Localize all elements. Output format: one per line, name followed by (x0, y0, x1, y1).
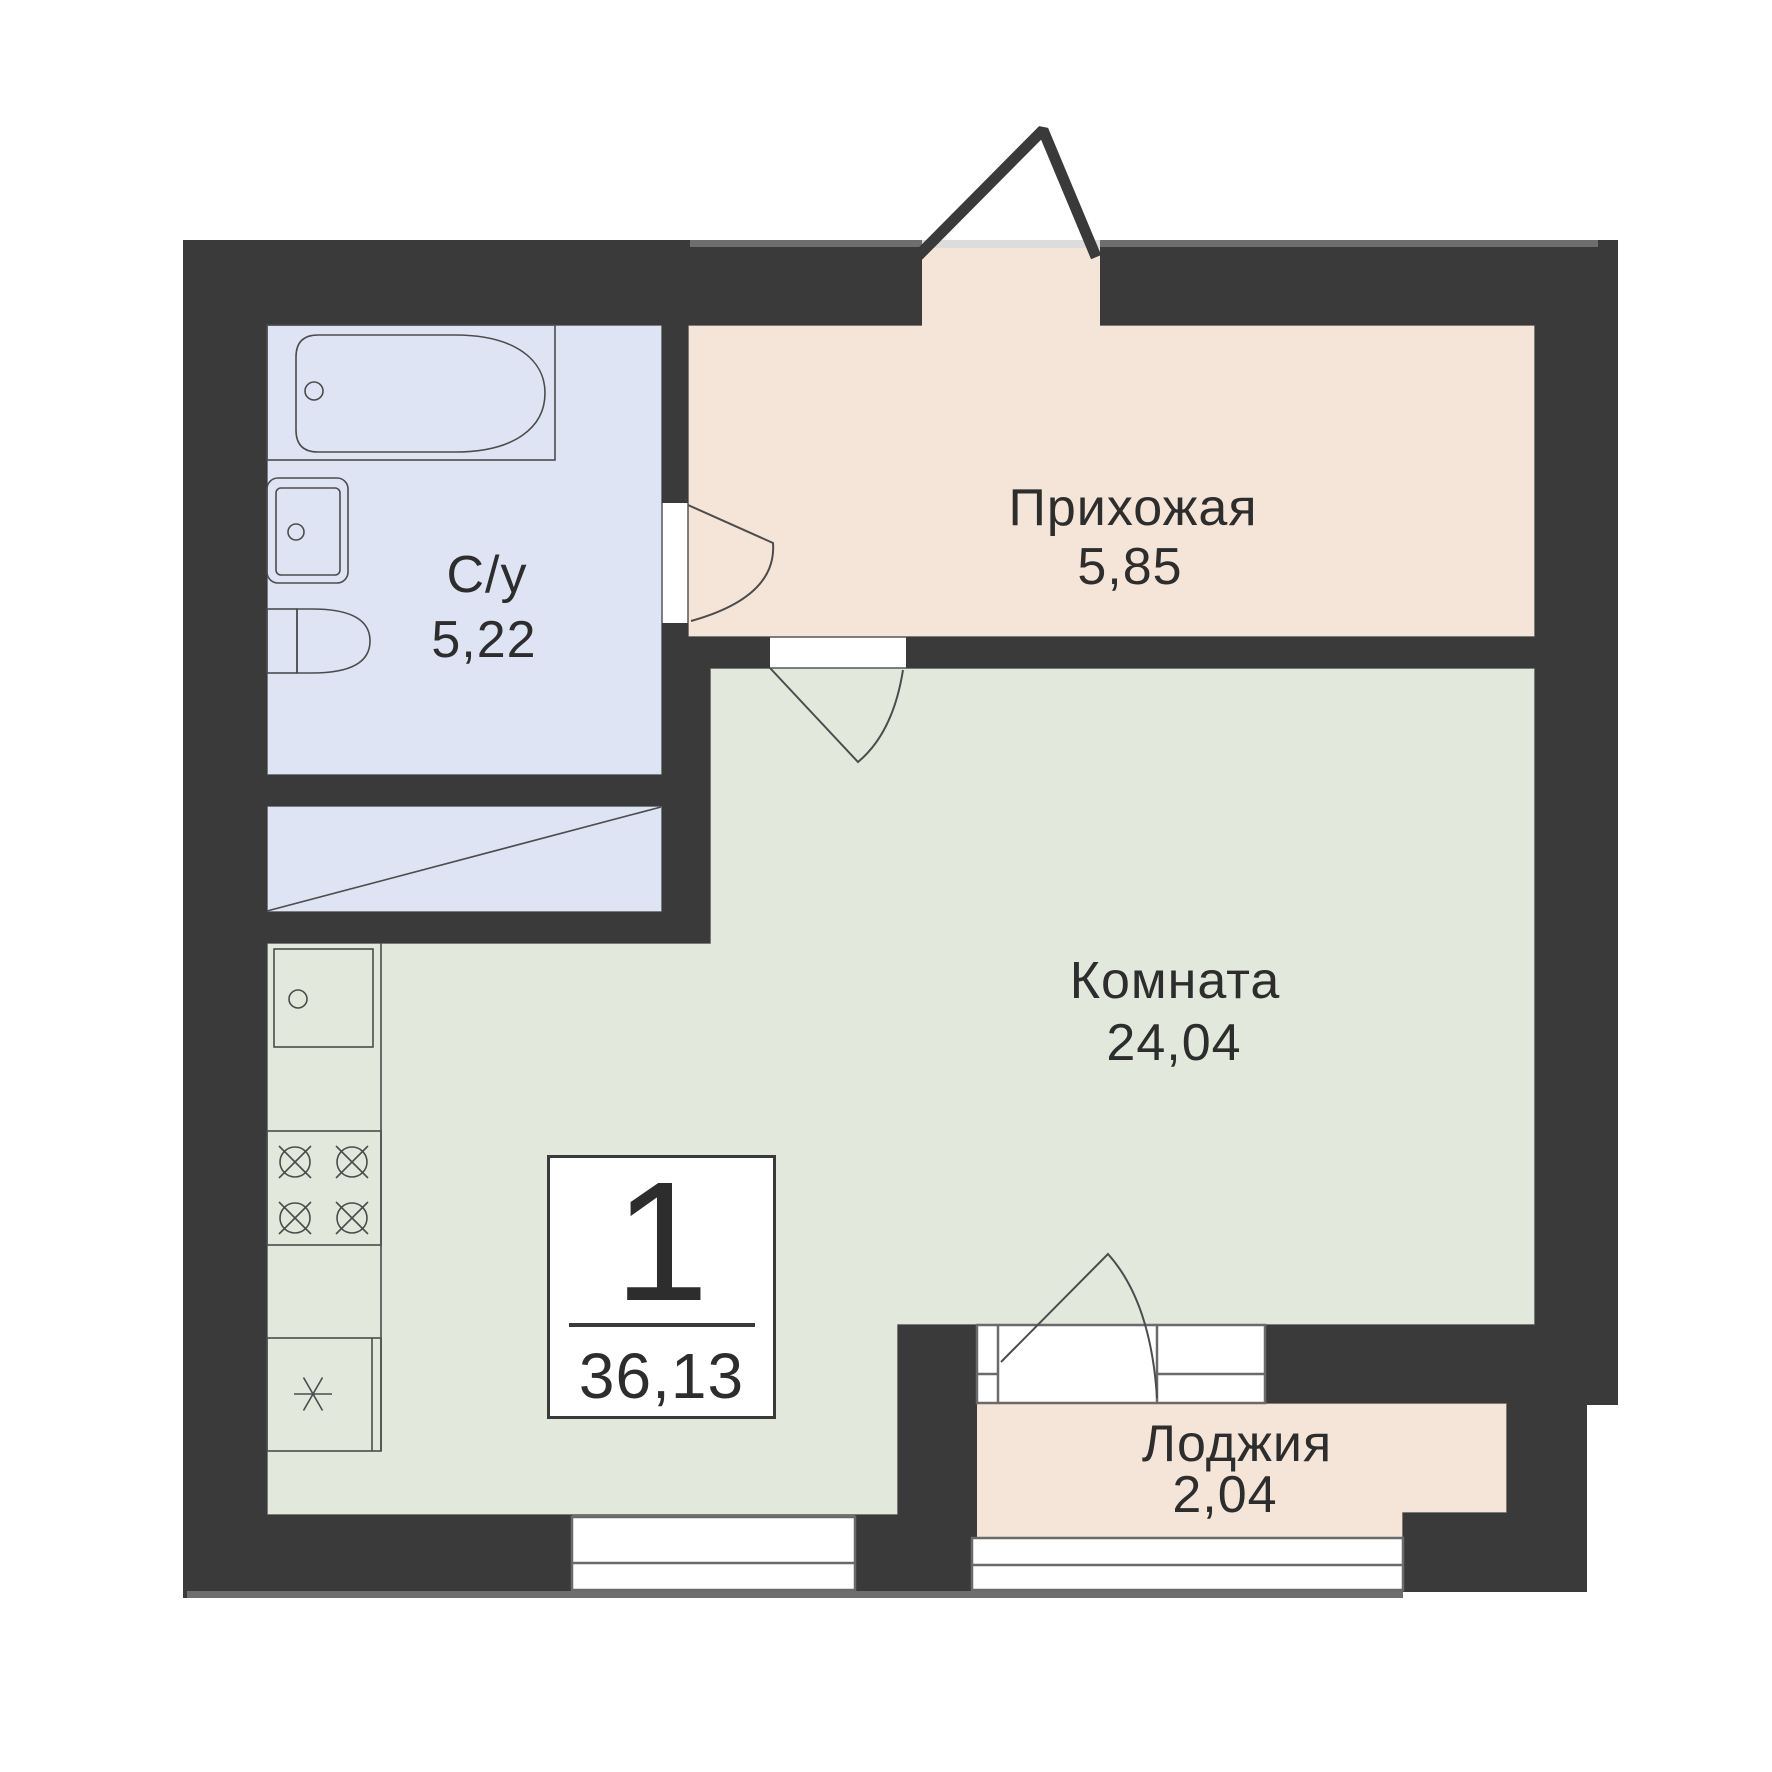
wall-bottom-left (183, 1515, 572, 1598)
hallway-area: 5,85 (1077, 537, 1182, 597)
wall-loggia-bottom-corner (1403, 1513, 1587, 1592)
living-room-label: Комната (1070, 951, 1281, 1011)
top-wall-trim (690, 240, 1598, 247)
window-icon (572, 1517, 855, 1590)
wall-left (183, 240, 267, 1598)
hallway-label: Прихожая (1009, 478, 1258, 538)
apartment-info-box: 1 36,13 (547, 1155, 776, 1419)
wall-closet-kitchen (267, 912, 710, 943)
wall-bathroom-hall-upper (662, 325, 688, 503)
rooms-count: 1 (614, 1157, 709, 1327)
loggia-glazing-window-icon (972, 1538, 1403, 1590)
floor-plan-drawing (0, 0, 1772, 1772)
entrance-door-icon (922, 130, 1094, 252)
wall-balcony-spandrel (1265, 1325, 1535, 1403)
wall-right (1535, 240, 1618, 1405)
info-box-divider (569, 1323, 755, 1327)
loggia-area: 2,04 (1172, 1465, 1277, 1525)
wall-hall-room-right (906, 637, 1535, 668)
entrance-opening (922, 248, 1100, 327)
total-area: 36,13 (579, 1339, 744, 1413)
wall-top-left (183, 240, 922, 325)
bathroom-area: 5,22 (431, 610, 536, 670)
wall-closet-room (662, 637, 710, 943)
wall-bathroom-closet (267, 775, 662, 806)
bottom-wall-trim (187, 1591, 1403, 1598)
balcony-door-window-icon (977, 1325, 1265, 1403)
wall-loggia-right (1507, 1403, 1587, 1513)
entrance-threshold (922, 240, 1100, 248)
floor-plan: Прихожая 5,85 С/у 5,22 Комната 24,04 Лод… (0, 0, 1772, 1772)
wall-bathroom-hall-lower (662, 623, 688, 637)
wall-loggia-left-pier (898, 1325, 977, 1598)
living-room-area: 24,04 (1106, 1013, 1241, 1073)
bathroom-label: С/у (447, 545, 528, 605)
